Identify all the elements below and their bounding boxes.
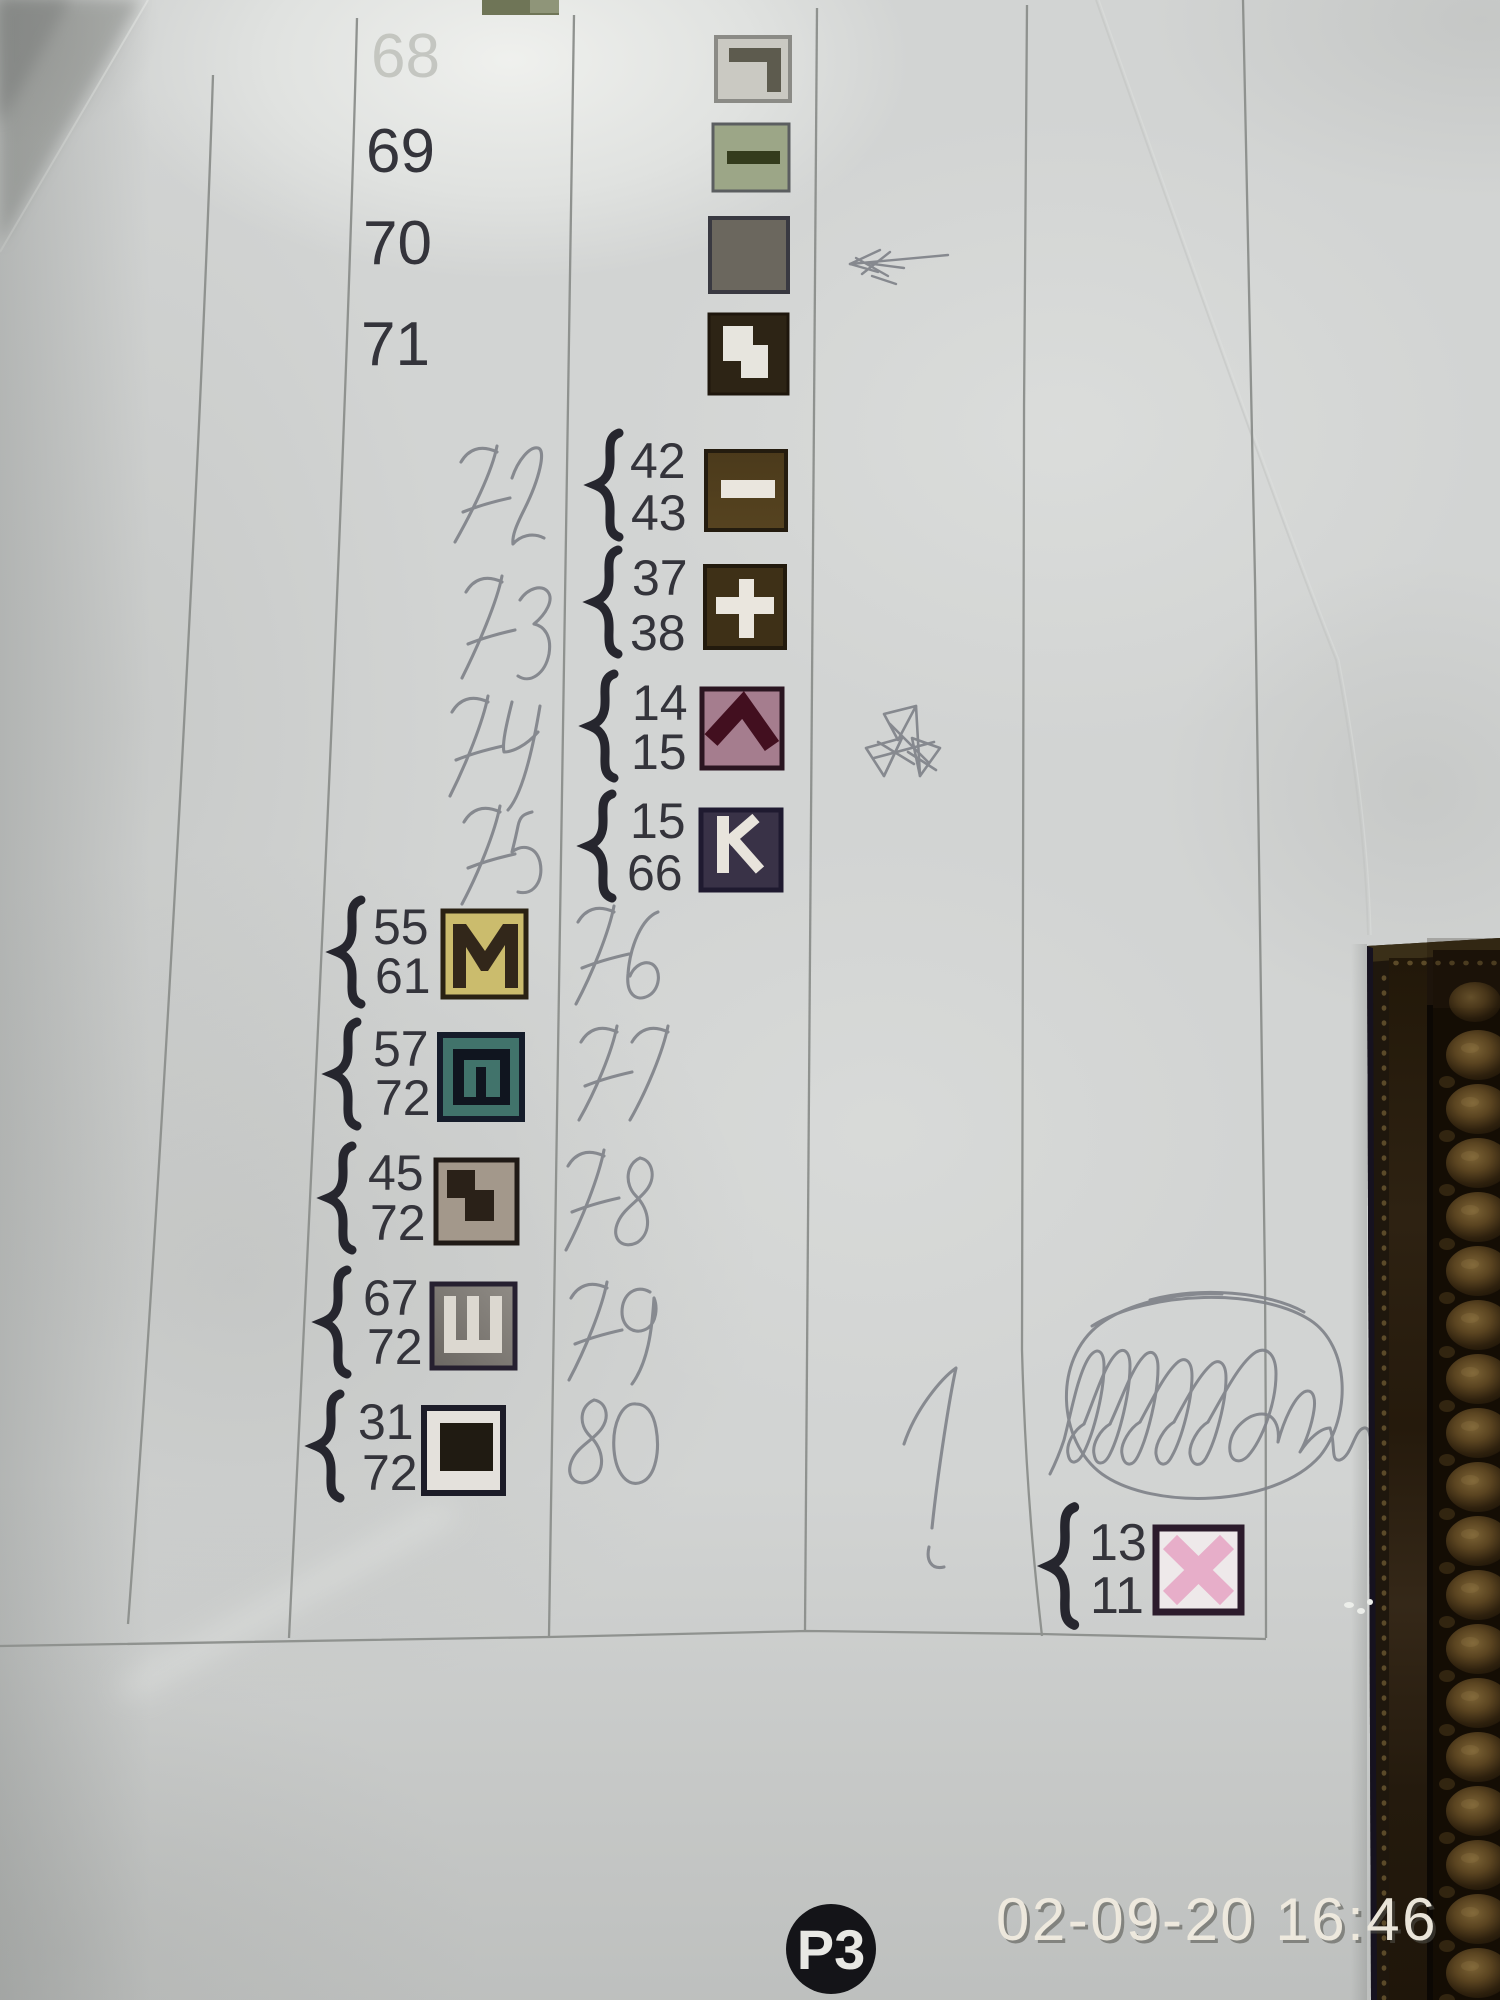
svg-text:72: 72 xyxy=(375,1070,431,1126)
svg-text:55: 55 xyxy=(373,899,429,955)
svg-text:71: 71 xyxy=(361,310,430,379)
svg-text:45: 45 xyxy=(368,1145,424,1201)
svg-text:61: 61 xyxy=(375,948,431,1004)
svg-text:P3: P3 xyxy=(797,1918,866,1981)
svg-text:13: 13 xyxy=(1089,1514,1147,1572)
svg-text:15: 15 xyxy=(631,724,687,780)
svg-text:72: 72 xyxy=(370,1195,426,1251)
svg-text:42: 42 xyxy=(630,433,686,489)
svg-text:72: 72 xyxy=(367,1319,423,1375)
svg-text:38: 38 xyxy=(630,605,686,661)
svg-text:15: 15 xyxy=(630,793,686,849)
svg-text:02-09-20 16:46: 02-09-20 16:46 xyxy=(996,1886,1438,1953)
svg-text:72: 72 xyxy=(362,1445,418,1501)
svg-text:66: 66 xyxy=(627,845,683,901)
svg-text:37: 37 xyxy=(632,550,688,606)
svg-text:11: 11 xyxy=(1090,1567,1144,1625)
svg-text:43: 43 xyxy=(631,485,687,541)
svg-text:57: 57 xyxy=(373,1021,429,1077)
svg-text:68: 68 xyxy=(371,22,440,91)
svg-text:14: 14 xyxy=(632,675,688,731)
svg-text:70: 70 xyxy=(363,209,432,278)
svg-text:31: 31 xyxy=(358,1394,414,1450)
svg-text:67: 67 xyxy=(363,1270,419,1326)
svg-text:69: 69 xyxy=(366,117,435,186)
